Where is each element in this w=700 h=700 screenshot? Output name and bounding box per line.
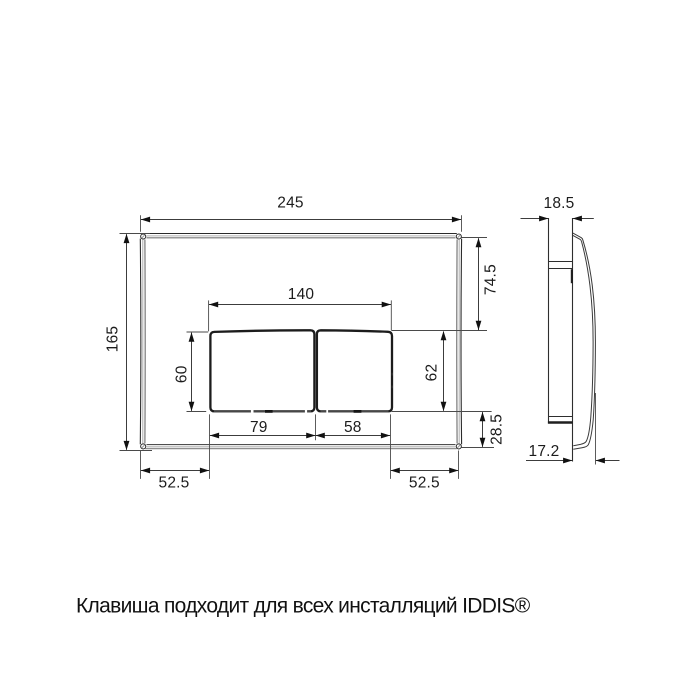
svg-text:28.5: 28.5	[489, 414, 506, 445]
svg-text:60: 60	[174, 365, 191, 383]
svg-text:165: 165	[105, 326, 122, 352]
svg-text:245: 245	[277, 195, 303, 212]
svg-text:62: 62	[424, 364, 441, 382]
svg-text:52.5: 52.5	[159, 475, 190, 492]
svg-text:52.5: 52.5	[409, 475, 440, 492]
svg-text:74.5: 74.5	[483, 264, 500, 295]
svg-text:140: 140	[288, 286, 315, 303]
svg-text:58: 58	[344, 419, 362, 436]
svg-text:79: 79	[250, 419, 268, 436]
svg-text:18.5: 18.5	[544, 195, 575, 212]
svg-text:17.2: 17.2	[529, 443, 560, 460]
svg-text:Клавиша подходит для всех инст: Клавиша подходит для всех инсталляций ID…	[76, 595, 531, 618]
